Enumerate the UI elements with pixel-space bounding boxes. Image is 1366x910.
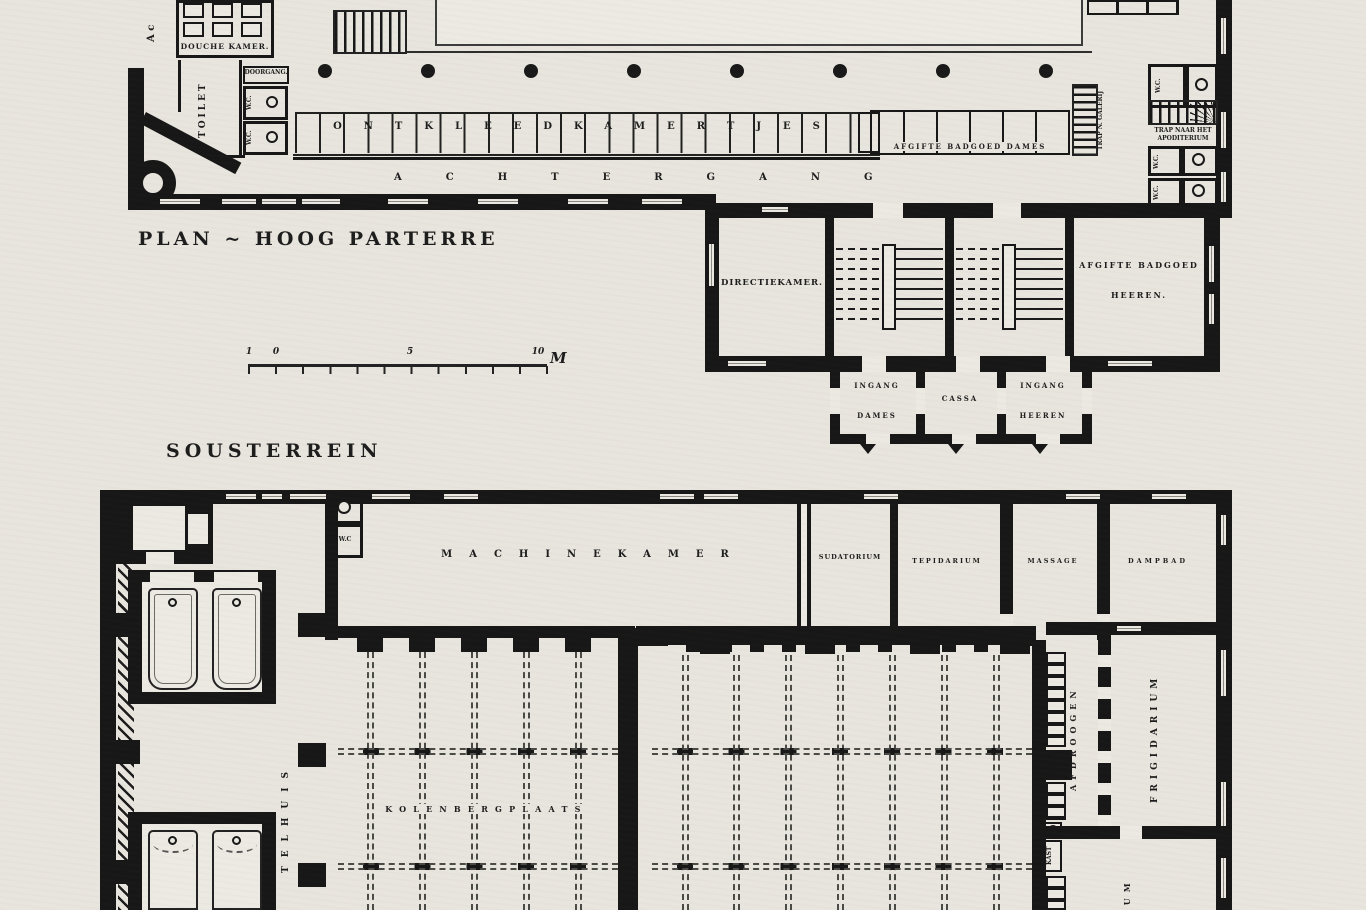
shower-stall: [183, 22, 204, 37]
toilet-fixture: [1192, 153, 1205, 166]
beam-line: [338, 748, 618, 755]
entrance-opening: [1036, 434, 1060, 444]
room-label-ingang-dames-2: DAMES: [838, 411, 916, 420]
beam-line: [338, 863, 618, 870]
stair-flight: [888, 248, 943, 326]
room-label-machinekamer: MACHINEKAMER: [420, 549, 750, 560]
column-line: [785, 655, 792, 910]
bench-table: [1087, 0, 1179, 15]
wall: [239, 60, 242, 158]
column-pier: [461, 628, 487, 652]
beam-line: [652, 748, 1032, 755]
column-line: [733, 655, 740, 910]
entrance-arrow: [1032, 444, 1048, 454]
counter-afgifte-dames: AFGIFTE BADGOED DAMES: [870, 110, 1070, 155]
stair-to-gallery: [333, 10, 407, 54]
entrance-arrow: [948, 444, 964, 454]
scale-bar-ticks: [248, 366, 548, 374]
column-pier: [805, 626, 835, 654]
column-pier: [1000, 626, 1030, 654]
window: [568, 197, 608, 206]
corridor-label-achtergang: ACHTERGANG: [350, 172, 895, 183]
window: [372, 492, 410, 501]
window: [728, 359, 766, 368]
window: [444, 492, 478, 501]
window: [1219, 18, 1228, 54]
room-label-kolenbergplaats: KOLENBERGPLAATS: [378, 804, 582, 814]
window: [262, 197, 296, 206]
chimney-flue: [188, 514, 208, 544]
window: [302, 197, 340, 206]
toilet-fixture: [266, 96, 278, 108]
axis-label: A c: [146, 4, 160, 62]
tub-drain: [168, 836, 177, 845]
room-label-ingang-dames-1: INGANG: [838, 381, 916, 390]
door-opening: [1120, 826, 1142, 839]
tub-drain: [232, 598, 241, 607]
stair-flight: [836, 248, 888, 326]
wall: [1216, 490, 1232, 910]
column: [833, 64, 847, 78]
wall: [705, 218, 719, 358]
window: [388, 197, 428, 206]
column-pier: [910, 626, 940, 654]
room-label-frigidarium: FRIGIDARIUM: [1150, 648, 1164, 828]
window: [1207, 246, 1216, 282]
winder-treads: [1190, 102, 1216, 123]
room-label-sudatorium: SUDATORIUM: [808, 553, 892, 561]
window: [1117, 624, 1141, 633]
room-label-toilet: TOILET: [198, 72, 212, 148]
shower-stall: [183, 3, 204, 18]
window: [1219, 782, 1228, 826]
window: [660, 492, 694, 501]
stair-label-line2: APODITERIUM: [1146, 135, 1220, 142]
entrance-opening: [866, 434, 890, 444]
stair-down-flight: [1046, 876, 1066, 910]
double-wall: [797, 504, 811, 640]
wall: [890, 504, 898, 640]
gallery-edge-line: [407, 51, 1092, 53]
column-line: [523, 652, 530, 910]
room-label-wc: W.C.: [246, 125, 260, 151]
dressing-cubicle-partitions: [295, 112, 858, 153]
column-line: [575, 652, 582, 910]
room-label-afgifte-heeren-line1: AFGIFTE BADGOED: [1074, 260, 1204, 270]
wall: [636, 626, 1036, 646]
door-opening: [1046, 356, 1070, 372]
scale-tick-label: 10: [529, 347, 547, 357]
stair-flight: [956, 248, 1008, 326]
beam-line: [652, 863, 1032, 870]
stair-hatch: [1072, 84, 1098, 156]
window: [1219, 112, 1228, 148]
room-label-afgifte-badgoed-dames: AFGIFTE BADGOED DAMES: [891, 142, 1050, 151]
bathtub-rim: [154, 594, 192, 684]
toilet-fixture: [1192, 184, 1205, 197]
column-pier: [513, 628, 539, 652]
stair-down-flight: [1046, 652, 1066, 747]
entrance-arrow: [860, 444, 876, 454]
column-pier: [700, 626, 730, 654]
window: [1219, 858, 1228, 898]
room-label-ketelhuis-partial: TELHUIS: [281, 726, 295, 910]
column-line: [993, 655, 1000, 910]
wall-pier: [100, 740, 140, 764]
room-label-wc: W.C.: [1153, 181, 1167, 204]
room-label-wc: W.C: [327, 536, 363, 543]
toilet-fixture: [1195, 78, 1208, 91]
door-opening: [214, 572, 258, 582]
stair-newel: [1002, 244, 1016, 330]
door-opening: [150, 572, 194, 582]
plan-title-sousterrein: SOUSTERREIN: [166, 440, 383, 462]
chimney-flue: [133, 506, 185, 550]
window: [1219, 515, 1228, 545]
room-label-wc: W.C.: [1155, 70, 1169, 102]
wall: [1065, 218, 1074, 358]
column-line: [837, 655, 844, 910]
window: [707, 244, 716, 286]
toilet-fixture: [266, 131, 278, 143]
wall-pier: [298, 613, 326, 637]
window: [226, 492, 256, 501]
room-label-tepidarium: TEPIDARIUM: [898, 557, 996, 565]
column: [318, 64, 332, 78]
stair-newel: [882, 244, 896, 330]
window: [1207, 294, 1216, 324]
window: [704, 492, 738, 501]
window: [222, 197, 256, 206]
wall: [825, 218, 834, 358]
slitted-wall: [1098, 635, 1111, 826]
room-label-afgifte-heeren-line2: HEEREN.: [1074, 290, 1204, 300]
wall: [1204, 218, 1220, 358]
bathtub-rim: [218, 594, 256, 684]
room-label-ingang-heeren-1: INGANG: [1004, 381, 1082, 390]
window: [1219, 650, 1228, 696]
door-opening: [1082, 388, 1092, 414]
entrance-opening: [952, 434, 976, 444]
column: [627, 64, 641, 78]
wall-pier: [298, 743, 326, 767]
pool-basin-outline: [435, 0, 1083, 46]
column: [524, 64, 538, 78]
scale-tick-label: 5: [403, 347, 417, 357]
basin-fixture: [337, 500, 351, 514]
window: [1152, 492, 1186, 501]
tub-drain: [232, 836, 241, 845]
room-label-directiekamer: DIRECTIEKAMER.: [719, 278, 825, 288]
shower-stall: [241, 22, 262, 37]
floor-plan-scan: A c DOUCHE KAMER. TOILET DOORGANG. W.C. …: [0, 0, 1366, 910]
room-label-doorgang: DOORGANG.: [243, 69, 289, 76]
room-label-wc: W.C.: [1153, 150, 1167, 173]
door-opening: [993, 203, 1021, 218]
stair-label-trap-galerij: TRAP N. GALERIJ: [1097, 84, 1111, 156]
wall: [178, 60, 181, 112]
column-pier: [357, 628, 383, 652]
stair-flight: [1008, 248, 1063, 326]
chimney-flue: [146, 552, 174, 564]
column-line: [682, 655, 689, 910]
column-line: [367, 652, 374, 910]
window: [642, 197, 682, 206]
scale-tick-label: 0: [269, 347, 283, 357]
plan-title-hoog-parterre: PLAN ~ HOOG PARTERRE: [138, 228, 499, 250]
room-label-dampbad: DAMPBAD: [1112, 557, 1204, 565]
wall: [205, 155, 245, 158]
shower-stall: [241, 3, 262, 18]
room-label-massage: MASSAGE: [1012, 557, 1094, 565]
room-label-cassa: CASSA: [923, 394, 997, 403]
shower-stall: [212, 3, 233, 18]
scale-unit: M: [550, 349, 567, 367]
stair-down-flight: [1046, 782, 1066, 820]
door-opening: [956, 356, 980, 372]
door-opening: [862, 356, 886, 372]
room-label-afdroogen: AFDROOGEN: [1068, 650, 1082, 828]
room-label-ingang-heeren-2: HEEREN: [1004, 411, 1082, 420]
door-opening: [873, 203, 903, 218]
column: [936, 64, 950, 78]
stair-label-line1: TRAP NAAR HET: [1146, 127, 1220, 134]
scale-tick-label: 1: [242, 347, 256, 357]
column-pier: [565, 628, 591, 652]
column-pier: [409, 628, 435, 652]
window: [1219, 172, 1228, 202]
column-line: [889, 655, 896, 910]
window: [864, 492, 898, 501]
dividing-wall: [618, 628, 638, 910]
room-label-apoditerium-partial: IUM: [1122, 856, 1136, 910]
column-line: [941, 655, 948, 910]
column: [1039, 64, 1053, 78]
shower-stall: [212, 22, 233, 37]
column-line: [471, 652, 478, 910]
room-label-ontkleedkamertjes: ONTKLEEDKAMERTJES: [295, 121, 858, 132]
tub-drain: [168, 598, 177, 607]
room-label-douche-kamer: DOUCHE KAMER.: [178, 42, 272, 51]
room-label-kast: KAST: [1046, 842, 1060, 870]
window: [762, 205, 788, 214]
window: [262, 492, 282, 501]
window: [1108, 359, 1152, 368]
room-label-wc: W.C.: [246, 90, 260, 116]
column: [730, 64, 744, 78]
column: [421, 64, 435, 78]
wall-pier: [298, 863, 326, 887]
wall: [945, 218, 954, 358]
column-line: [419, 652, 426, 910]
window: [290, 492, 326, 501]
window: [160, 197, 200, 206]
window: [478, 197, 518, 206]
cubicle-front-line: [293, 154, 880, 160]
window: [1066, 492, 1100, 501]
